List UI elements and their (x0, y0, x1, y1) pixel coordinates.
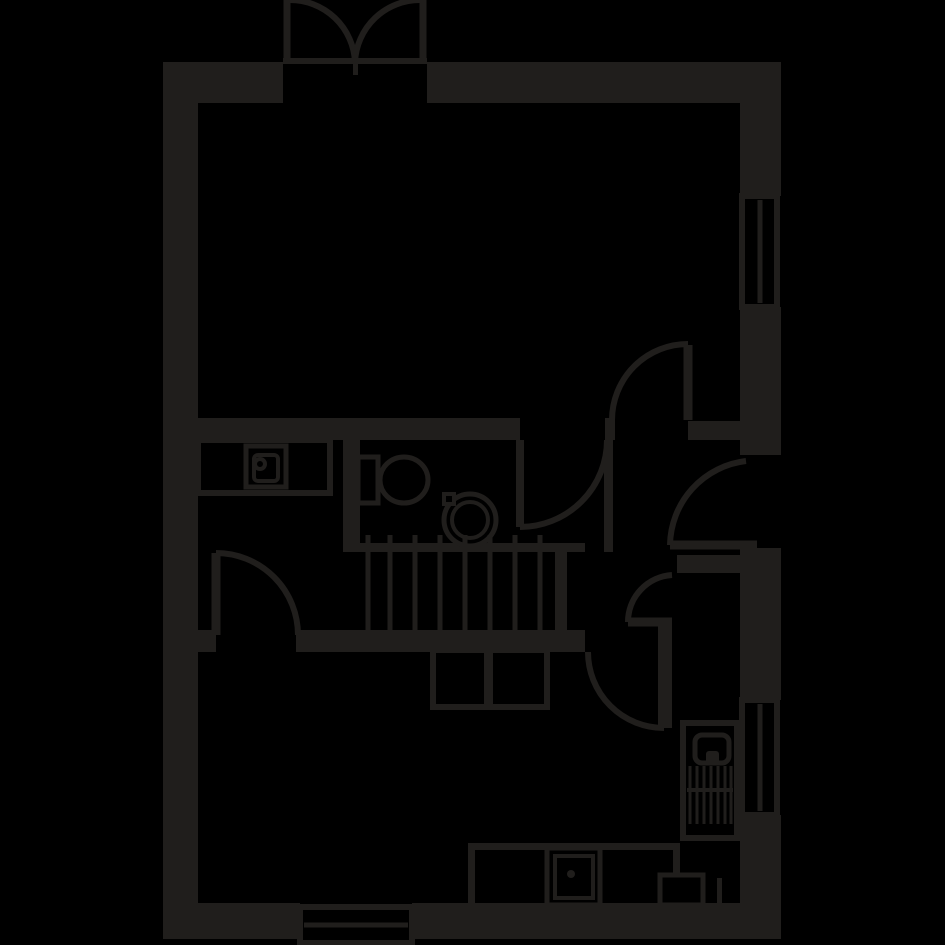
living-door-swing (612, 344, 688, 420)
wall-hall-southeast (677, 555, 740, 573)
appliance-sink-unit (660, 875, 703, 905)
wall-middle-left (163, 418, 520, 440)
toilet-cistern (358, 457, 378, 503)
kitchen-door-swing (216, 553, 298, 635)
wall-middle-right (688, 421, 740, 440)
wc-door-swing (520, 440, 607, 527)
wall-top-left (163, 62, 283, 103)
wall-right-lower (740, 548, 781, 700)
wall-bottom-right (412, 903, 781, 939)
larder-knob (706, 751, 719, 764)
floor-plan-svg (0, 0, 945, 945)
wall-bottom-left (163, 903, 300, 939)
basin-inner (452, 502, 488, 538)
french-door-right-swing (355, 0, 420, 62)
toilet-bowl (380, 457, 428, 503)
appliance-oven-dot (567, 870, 575, 878)
wall-top-right (427, 62, 740, 103)
wall-cupboard-bar (658, 622, 672, 728)
counter-return-line (717, 878, 722, 905)
basin-tap (444, 494, 454, 504)
wall-right-top (740, 62, 781, 196)
understair-cupboard-2 (490, 650, 547, 707)
understair-cupboard-1 (433, 650, 487, 707)
wall-left-pier (163, 630, 216, 652)
dining-door-swing (588, 652, 664, 728)
stairs-right-edge (555, 543, 567, 633)
appliance-oven-inner (555, 856, 593, 898)
wall-right-mid (740, 307, 781, 455)
floor-plan-stage (0, 0, 945, 945)
base-counter-left (468, 843, 475, 905)
french-door-left-swing (290, 0, 355, 62)
front-door-swing (670, 461, 746, 545)
wall-middle-jamb (605, 418, 615, 440)
cupboard-door-swing (628, 575, 672, 622)
wall-left (163, 62, 198, 938)
kitchen-tap (255, 459, 265, 469)
